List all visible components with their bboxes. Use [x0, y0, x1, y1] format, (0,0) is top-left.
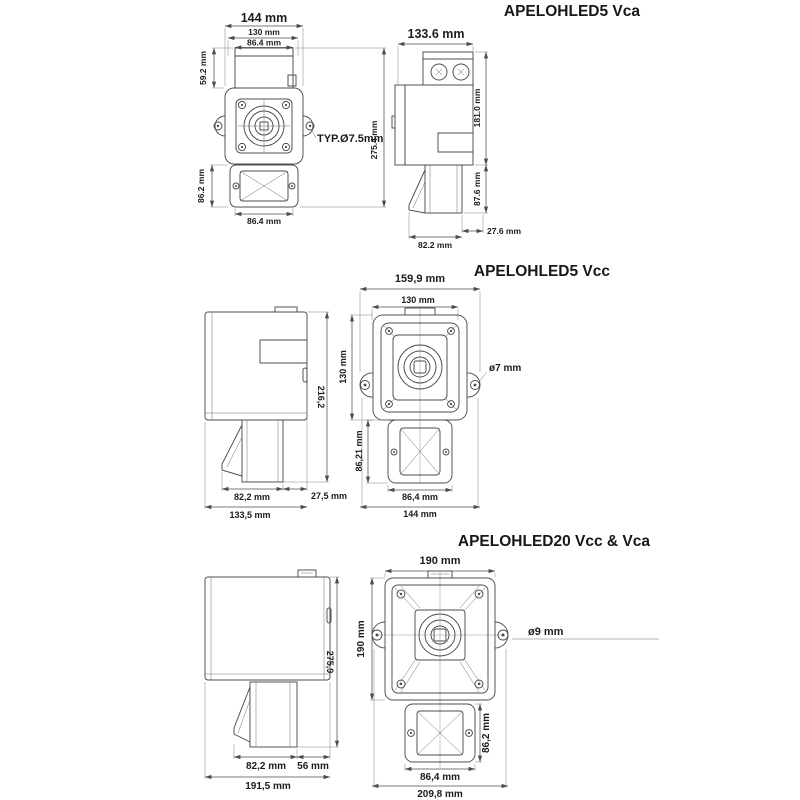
- side-view: 216,2 82,2 mm 27,5 mm 133,5 mm: [205, 307, 347, 520]
- dim-front-hole-callout: ø7 mm: [489, 363, 521, 374]
- horn-flare: [409, 170, 425, 213]
- dim-side-width: 133,5 mm: [229, 510, 270, 520]
- dim-side-width: 191,5 mm: [245, 781, 291, 792]
- leader-line: [479, 372, 487, 382]
- front-view: 144 mm 130 mm 86.4 mm 59.2 mm 86.2 mm 86…: [196, 11, 386, 226]
- dim-front-beacon-height: 130 mm: [338, 350, 348, 384]
- mounting-ear-right: [467, 373, 480, 397]
- side-sounder: [425, 165, 462, 213]
- side-sounder: [242, 420, 283, 482]
- diagram-apelohled5-vcc: 216,2 82,2 mm 27,5 mm 133,5 mm 159,9 mm …: [180, 262, 660, 540]
- mounting-ear-left: [214, 116, 225, 136]
- lens-crosshair: [238, 100, 290, 152]
- dim-side-height: 216,2: [316, 386, 326, 409]
- dim-front-hole-callout: TYP.Ø7.5mm: [317, 133, 384, 145]
- leader-line: [311, 129, 316, 138]
- diagram-apelohled20: 275,9 82,2 mm 56 mm 191,5 mm 190 mm: [180, 530, 660, 800]
- dim-front-sounder-height: 86.2 mm: [196, 169, 206, 203]
- dim-front-box-width: 86.4 mm: [247, 38, 281, 48]
- front-view: 159,9 mm 130 mm: [338, 273, 521, 519]
- dim-front-hole-spacing: 130 mm: [248, 27, 280, 37]
- dim-side-depth: 82,2 mm: [246, 761, 286, 772]
- dim-side-body-height: 181.0 mm: [472, 88, 482, 127]
- junction-box: [235, 48, 296, 88]
- side-sounder: [250, 682, 297, 747]
- front-view: 190 mm: [356, 555, 659, 800]
- dim-side-offset: 27.6 mm: [487, 226, 521, 236]
- horn-flare: [222, 425, 242, 476]
- technical-drawing-sheet: APELOHLED5 Vca: [0, 0, 800, 800]
- side-body: [205, 307, 307, 420]
- side-view: 133.6 mm 181.0 mm 87.6 mm 27.6 mm 82.2 m…: [392, 27, 521, 250]
- dim-side-sounder-height: 87.6 mm: [472, 172, 482, 206]
- dim-side-offset: 56 mm: [297, 761, 329, 772]
- dim-side-height: 275,9: [325, 651, 335, 674]
- dim-front-sounder-width: 86.4 mm: [247, 216, 281, 226]
- mounting-ear-left: [360, 373, 373, 397]
- dim-front-box-height: 59.2 mm: [198, 51, 208, 85]
- dim-front-overall-width: 144 mm: [241, 11, 288, 25]
- dim-front-beacon-height: 190 mm: [356, 620, 367, 657]
- side-body: [205, 570, 331, 680]
- side-body: [392, 85, 473, 165]
- gland-box: [423, 52, 473, 85]
- diagram-apelohled5-vca: 144 mm 130 mm 86.4 mm 59.2 mm 86.2 mm 86…: [180, 0, 660, 260]
- side-view: 275,9 82,2 mm 56 mm 191,5 mm: [205, 570, 339, 792]
- dim-front-sounder-width: 86,4 mm: [420, 772, 460, 783]
- mounting-ear-right: [303, 116, 314, 136]
- dim-side-offset: 27,5 mm: [311, 491, 347, 501]
- dim-front-hole-spacing: 130 mm: [401, 295, 435, 305]
- sounder-body: [230, 165, 298, 207]
- dim-front-sounder-height: 86,2 mm: [481, 713, 492, 753]
- dim-front-sounder-width: 86,4 mm: [402, 492, 438, 502]
- dim-front-top-width: 190 mm: [420, 555, 461, 567]
- dim-side-depth: 82,2 mm: [234, 492, 270, 502]
- dim-front-base-width: 144 mm: [403, 509, 437, 519]
- dim-side-width: 133.6 mm: [408, 27, 465, 41]
- dim-front-overall-width: 159,9 mm: [395, 273, 445, 285]
- dim-front-sounder-height: 86,21 mm: [354, 430, 364, 471]
- dim-side-depth: 82.2 mm: [418, 240, 452, 250]
- dim-front-hole-callout: ø9 mm: [528, 626, 564, 638]
- cable-glands: [431, 64, 469, 80]
- horn-flare: [234, 687, 250, 742]
- dim-front-overall-width: 209,8 mm: [417, 789, 463, 800]
